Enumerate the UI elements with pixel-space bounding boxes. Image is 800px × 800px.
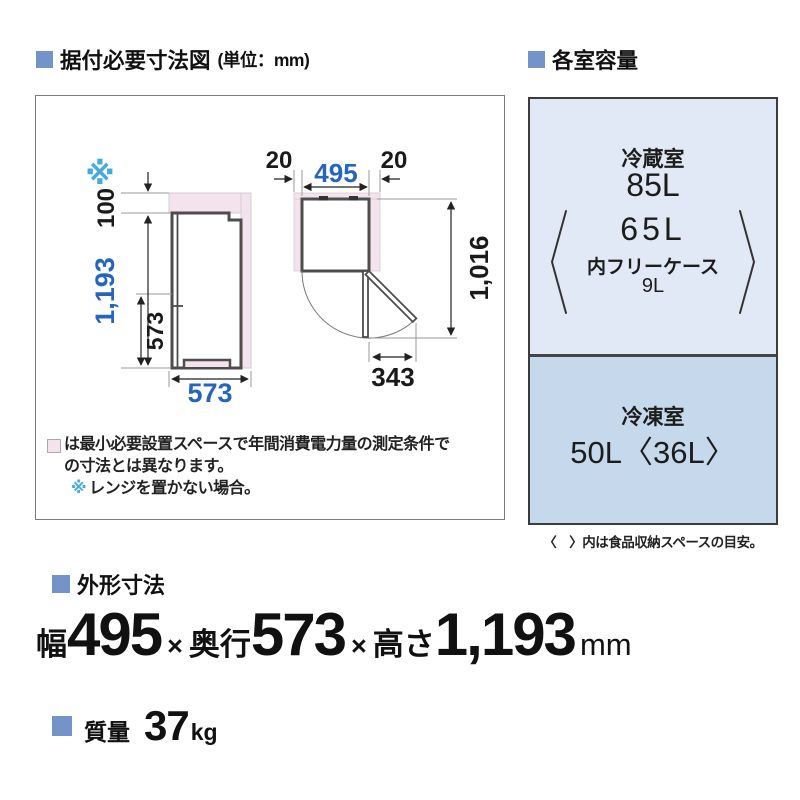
installation-diagram: ※ 100 1,193 573 573 [36, 96, 503, 426]
fridge-capacity-section: 冷蔵室 85L 65L 内フリーケース 9L [530, 99, 776, 357]
installation-diagram-box: ※ 100 1,193 573 573 [35, 95, 505, 520]
hinge-mark-right [349, 196, 358, 201]
section-bullet-icon [52, 716, 72, 736]
height-value: 1,193 [435, 600, 575, 669]
asterisk-note-text: レンジを置かない場合。 [89, 480, 260, 497]
dim-495-label: 495 [314, 158, 357, 188]
pink-square-icon [47, 439, 61, 453]
dim-343-label: 343 [371, 362, 414, 392]
weight-label: 質量 [84, 713, 130, 747]
dim-20-right-label: 20 [381, 147, 408, 174]
refrigerator-spec-sheet: 据付必要寸法図 (単位：mm) 各室容量 [0, 0, 800, 800]
capacity-footnote: 〈 〉内は食品収納スペースの目安。 [528, 531, 778, 551]
section-bullet-icon [528, 51, 545, 68]
outer-dims-title: 外形寸法 [77, 568, 165, 600]
weight-value: 37 [144, 702, 189, 750]
dim-100-label: 100 [93, 188, 120, 228]
times-sign: × [351, 631, 367, 662]
pink-note-line2: の寸法とは異なります。 [64, 456, 495, 478]
install-space-right [370, 193, 380, 271]
dim-573-depth-label: 573 [187, 378, 232, 408]
dim-1016-label: 1,016 [464, 235, 494, 300]
installation-unit: (単位：mm) [218, 47, 310, 72]
dim-20-left-label: 20 [266, 147, 293, 174]
mm-unit: mm [580, 627, 632, 663]
depth-label: 奥行 [189, 619, 251, 664]
capacity-title: 各室容量 [552, 44, 638, 75]
installation-header: 据付必要寸法図 (単位：mm) [36, 44, 309, 75]
width-value: 495 [67, 600, 161, 669]
height-label: 高さ [373, 619, 435, 664]
freezer-capacity-section: 冷凍室 50L〈36L〉 [530, 357, 776, 523]
weight-row: 質量 37 kg [52, 702, 218, 750]
width-label: 幅 [36, 619, 67, 664]
bracket-decoration [530, 99, 776, 354]
pink-note-line1: は最小必要設置スペースで年間消費電力量の測定条件で [64, 434, 450, 456]
fridge-top-view [302, 199, 369, 271]
section-bullet-icon [52, 575, 70, 593]
depth-value: 573 [251, 600, 345, 669]
diagram-notes: は最小必要設置スペースで年間消費電力量の測定条件で の寸法とは異なります。 ※レ… [47, 434, 495, 500]
capacity-header: 各室容量 [528, 44, 638, 75]
asterisk-mark: ※ [85, 158, 114, 191]
left-angle-bracket [552, 211, 566, 313]
installation-title: 据付必要寸法図 [60, 44, 211, 75]
asterisk-note: ※レンジを置かない場合。 [71, 478, 495, 500]
freezer-volume: 50L〈36L〉 [530, 427, 776, 472]
right-angle-bracket [740, 211, 754, 313]
capacity-panel: 冷蔵室 85L 65L 内フリーケース 9L 冷凍室 50L〈36L〉 [528, 97, 778, 525]
kg-unit: kg [191, 719, 218, 746]
dim-573-inner-label: 573 [142, 312, 168, 350]
pink-space-note: は最小必要設置スペースで年間消費電力量の測定条件で [47, 434, 495, 456]
section-bullet-icon [36, 51, 53, 68]
outer-dims-header: 外形寸法 [52, 568, 165, 600]
dim-1193-label: 1,193 [90, 257, 120, 325]
base-gap [184, 361, 230, 367]
asterisk-icon: ※ [71, 480, 86, 497]
fridge-side-view [172, 213, 241, 368]
door-open-90 [363, 271, 368, 337]
outer-dimensions-line: 幅 495 × 奥行 573 × 高さ 1,193 mm [36, 600, 632, 669]
install-space-top [169, 193, 251, 213]
door-open-135 [365, 271, 416, 322]
times-sign: × [167, 631, 183, 662]
hinge-mark-left [319, 196, 328, 201]
